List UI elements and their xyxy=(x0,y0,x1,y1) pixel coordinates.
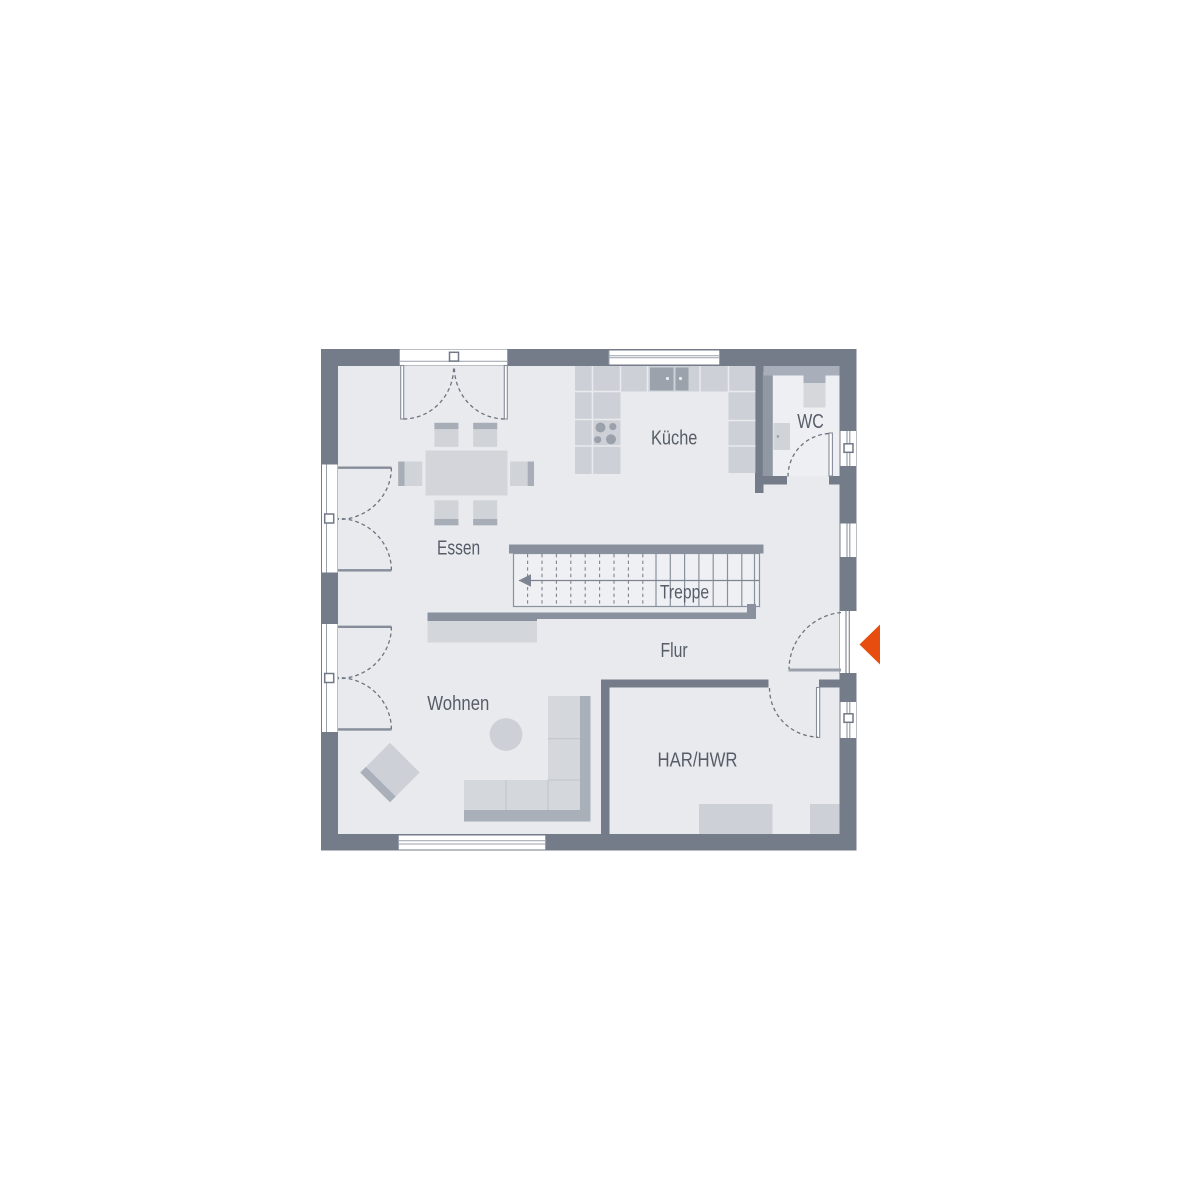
svg-text:Flur: Flur xyxy=(661,639,688,662)
svg-text:HAR/HWR: HAR/HWR xyxy=(658,748,738,771)
svg-text:WC: WC xyxy=(797,410,824,433)
svg-text:Treppe: Treppe xyxy=(660,583,709,604)
svg-text:Küche: Küche xyxy=(651,427,697,450)
svg-text:Wohnen: Wohnen xyxy=(427,692,489,715)
svg-text:Essen: Essen xyxy=(437,537,480,560)
